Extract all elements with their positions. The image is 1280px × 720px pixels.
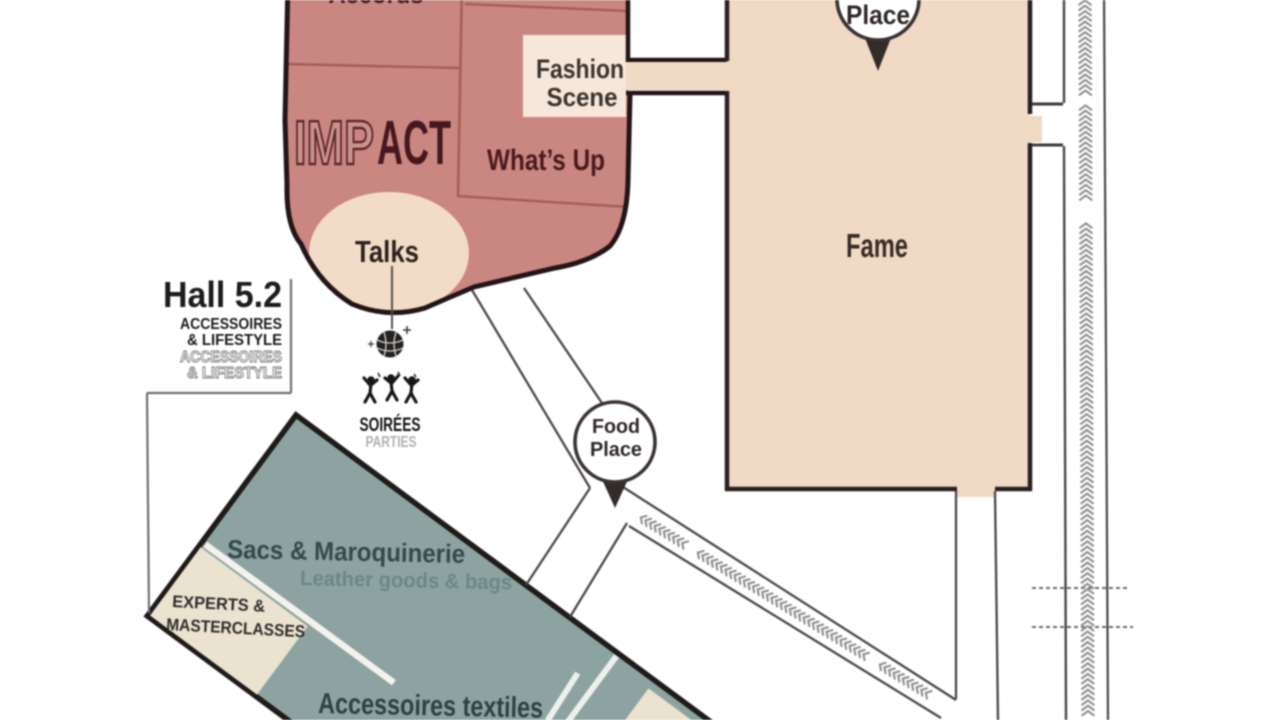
svg-text:Leather goods & bags: Leather goods & bags xyxy=(300,567,512,594)
svg-text:ACCESSOIRES: ACCESSOIRES xyxy=(180,349,282,366)
svg-text:& LIFESTYLE: & LIFESTYLE xyxy=(187,365,282,382)
svg-text:& LIFESTYLE: & LIFESTYLE xyxy=(187,332,282,349)
svg-text:Place: Place xyxy=(590,439,642,461)
svg-text:ACT: ACT xyxy=(377,109,451,178)
svg-text:Food: Food xyxy=(592,416,640,438)
svg-text:Hall 5.2: Hall 5.2 xyxy=(163,274,282,315)
svg-text:Scene: Scene xyxy=(547,82,618,112)
svg-text:SOIRÉES: SOIRÉES xyxy=(360,414,421,436)
svg-text:Talks: Talks xyxy=(355,234,419,269)
svg-text:ACCESSOIRES: ACCESSOIRES xyxy=(180,316,282,333)
svg-text:Accords: Accords xyxy=(329,0,424,9)
svg-text:IMP: IMP xyxy=(294,109,374,178)
svg-text:Sacs & Maroquinerie: Sacs & Maroquinerie xyxy=(227,534,466,569)
svg-text:What’s Up: What’s Up xyxy=(487,144,605,177)
svg-text:Fame: Fame xyxy=(846,227,908,264)
svg-text:Fashion: Fashion xyxy=(536,54,624,84)
svg-text:Place: Place xyxy=(846,0,910,30)
svg-text:PARTIES: PARTIES xyxy=(366,434,417,451)
svg-text:Accessoires textiles: Accessoires textiles xyxy=(318,688,544,720)
